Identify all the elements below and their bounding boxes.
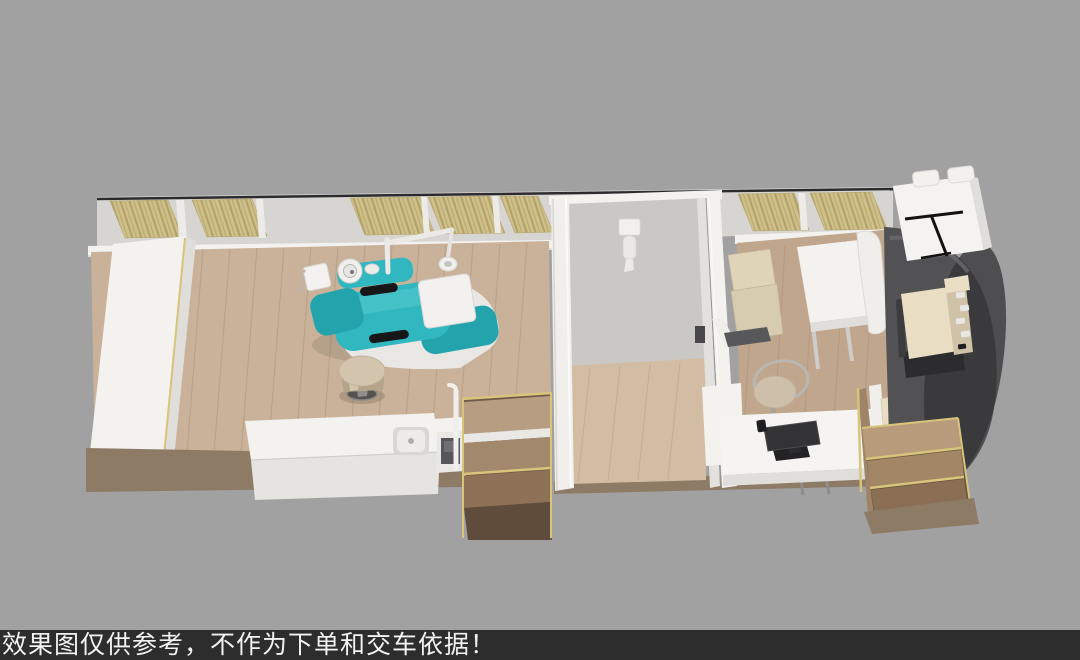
disclaimer-bar: 效果图仅供参考，不作为下单和交车依据！ xyxy=(0,630,1080,660)
clinic-render-image xyxy=(0,0,1080,630)
roof-hatch xyxy=(912,169,940,187)
mid-entry-steps xyxy=(449,385,552,540)
sink-basin xyxy=(393,427,429,455)
disclaimer-text: 效果图仅供参考，不作为下单和交车依据！ xyxy=(2,630,496,659)
doctor-stool xyxy=(339,356,385,404)
sterilizer-unit xyxy=(434,417,466,473)
windshield-frame xyxy=(893,165,992,261)
sink-drain xyxy=(408,438,414,444)
roof-hatch xyxy=(947,165,975,183)
instrument-tray xyxy=(418,273,477,329)
sink-counter xyxy=(245,413,440,500)
cup-holder xyxy=(365,264,379,274)
vehicle-render xyxy=(86,165,1019,540)
desk-phone xyxy=(756,419,767,432)
